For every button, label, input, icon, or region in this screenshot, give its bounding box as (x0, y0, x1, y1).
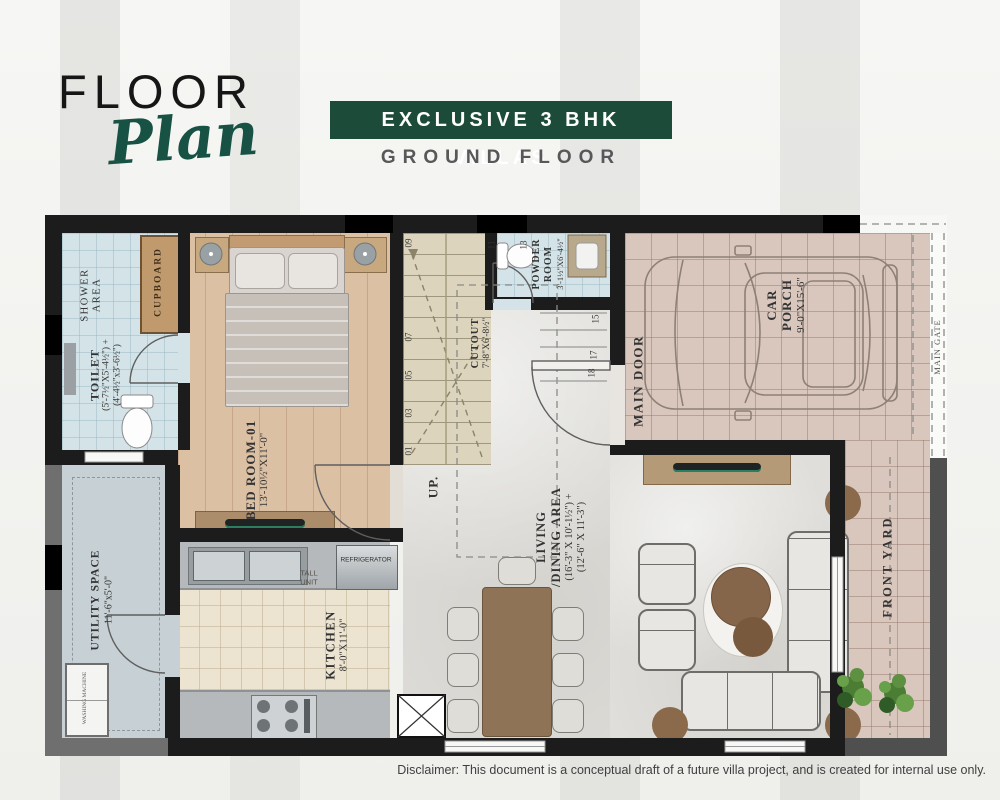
burner (285, 719, 298, 732)
burner (285, 700, 298, 713)
wall-segment (178, 233, 190, 333)
stove-knobs (304, 699, 310, 733)
car-porch-floor (625, 233, 930, 440)
label-powder-room: POWDER ROOM 3'-1½"X6'-4½" (531, 238, 565, 290)
wall-segment (165, 677, 180, 738)
stair-step-number: 07 (404, 333, 415, 342)
page-title-script: Plan (106, 99, 261, 179)
compound-wall (45, 738, 168, 756)
label-main-door: MAIN DOOR (630, 335, 645, 427)
burner (257, 719, 270, 732)
door-opening (493, 299, 531, 310)
banner: EXCLUSIVE 3 BHK VILLAS (330, 101, 672, 139)
stair-step-number: 09 (404, 239, 415, 248)
armchair (638, 609, 696, 671)
label-up: UP. (425, 476, 440, 498)
dining-chair (447, 699, 479, 733)
label-toilet: TOILET (5'-7½"X5'-4½") + (4'-4½"x3'-6½") (88, 339, 125, 411)
coffee-table-small (733, 617, 773, 657)
refrigerator-unit (336, 545, 398, 590)
dining-table (482, 587, 552, 737)
door-opening (178, 333, 190, 383)
label-cutout: CUTOUT 7'-8"X6'-8½" (470, 318, 494, 369)
bed-duvet (225, 293, 349, 407)
stair-step-number: 17 (589, 351, 600, 360)
wall-segment (62, 450, 178, 465)
floor-plan: SHOWER AREA CUPBOARD TOILET (5'-7½"X5'-4… (45, 215, 947, 756)
wall-segment (830, 440, 845, 756)
floor-subtitle: GROUND FLOOR (330, 147, 672, 169)
sink-basin (249, 551, 301, 581)
stair-step-number: 13 (519, 241, 530, 250)
nightstand (195, 237, 229, 273)
disclaimer-text: Disclaimer: This document is a conceptua… (397, 763, 986, 777)
label-utility-space: UTILITY SPACE 11'-6"x5'-0" (89, 550, 114, 651)
dining-chair (552, 653, 584, 687)
label-washing-machine: WASHING MACHINE (82, 672, 88, 724)
label-front-yard: FRONT YARD (881, 516, 896, 617)
label-kitchen: KITCHEN 8'-0"X11'-0" (323, 610, 350, 680)
coffee-table (711, 567, 771, 627)
door-opening (390, 465, 403, 528)
label-main-gate: MAIN GATE (932, 319, 942, 375)
label-bedroom: BED ROOM-01 13'-10½"X11'-0" (243, 420, 271, 520)
wall-segment (165, 465, 180, 615)
dining-chair (498, 557, 536, 585)
tv (673, 463, 761, 472)
wall-segment (168, 528, 403, 542)
nightstand (343, 237, 387, 273)
wall-segment (168, 738, 830, 756)
stair-step-number: 05 (404, 371, 415, 380)
label-refrigerator: REFRIGERATOR (340, 556, 391, 563)
door-opening (165, 615, 180, 677)
pillow (235, 253, 285, 289)
dining-chair (447, 653, 479, 687)
stair-step-number: 18 (587, 369, 598, 378)
boundary-wall (930, 458, 947, 738)
label-cupboard: CUPBOARD (153, 247, 164, 317)
stair-step-number: 03 (404, 409, 415, 418)
pillow (288, 253, 338, 289)
compound-wall (45, 465, 62, 756)
sink-basin (193, 551, 245, 581)
label-tall-unit: TALL UNIT (300, 569, 318, 586)
column (45, 315, 62, 355)
setback-strip (860, 215, 947, 233)
wall-segment (45, 215, 860, 233)
column (45, 545, 62, 590)
wall-segment (610, 440, 845, 455)
dining-chair (447, 607, 479, 641)
main-door-opening (610, 365, 625, 445)
boundary-wall (845, 738, 947, 756)
armchair (638, 543, 696, 605)
column (823, 215, 860, 233)
burner (257, 700, 270, 713)
dining-chair (552, 699, 584, 733)
wall-segment (390, 233, 403, 465)
wall-segment (178, 383, 190, 450)
stair-step-number: 01 (404, 447, 415, 456)
wall-segment (610, 233, 625, 365)
stair-step-number: 15 (591, 315, 602, 324)
bedroom-tv (225, 519, 305, 528)
label-shower-area: SHOWER AREA (80, 268, 105, 321)
column (477, 215, 527, 233)
label-car-porch: CAR PORCH 9'-0"X15'-6" (764, 277, 808, 333)
sofa (681, 671, 821, 731)
dining-chair (552, 607, 584, 641)
label-living-dining: LIVING /DINING AREA (16'-3" X 10'-1½") +… (534, 487, 588, 587)
column (345, 215, 393, 233)
stair-step-number: 11 (487, 241, 498, 250)
